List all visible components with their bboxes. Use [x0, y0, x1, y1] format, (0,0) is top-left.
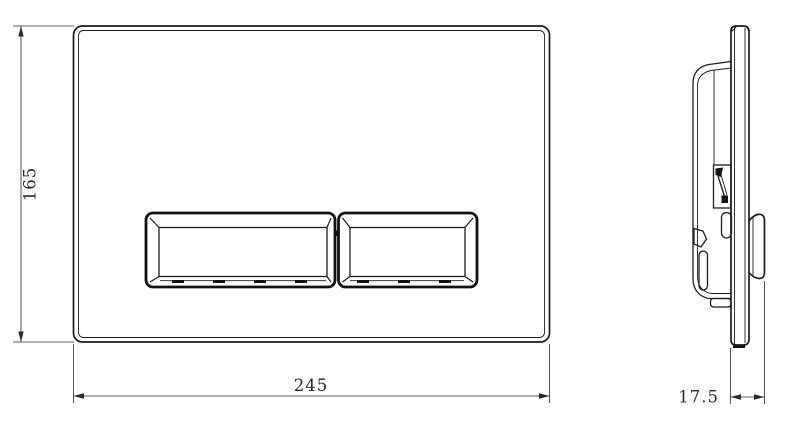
button-small: [339, 213, 478, 287]
bevel-line: [343, 277, 351, 283]
bevel-line: [465, 277, 473, 283]
dim-depth-label: 17.5: [678, 388, 719, 407]
dim-height-label: 165: [21, 167, 40, 202]
lever-mechanism: [714, 165, 732, 208]
bevel-line: [327, 277, 331, 283]
dimension-height: 165: [13, 26, 74, 342]
plate-inner-outline: [79, 31, 545, 338]
arrowhead-right: [754, 394, 765, 399]
arrowhead-left: [731, 394, 742, 399]
bevel-line: [343, 218, 351, 228]
lever-arm: [718, 176, 725, 197]
dimension-depth: 17.5: [678, 281, 764, 407]
lever-foot: [722, 196, 729, 204]
side-mounting-frame: [693, 62, 732, 308]
frame-bottom-flange: [711, 299, 732, 308]
plate-outer-outline: [74, 26, 550, 342]
side-view: 17.5: [678, 26, 764, 407]
button-divider-latch: [335, 231, 339, 237]
arrowhead-right: [539, 393, 550, 398]
flush-buttons: [146, 213, 477, 287]
technical-drawing-canvas: 165 245: [0, 0, 800, 442]
button-small-face: [350, 228, 465, 277]
dim-width-label: 245: [294, 376, 329, 395]
frame-slot-lower: [699, 251, 708, 290]
lever-pivot: [716, 168, 724, 178]
bevel-line: [465, 218, 473, 228]
side-plate-outline: [731, 26, 749, 345]
side-push-button: [749, 214, 765, 278]
side-plate-profile: [731, 26, 749, 347]
flush-plate-drawing: 165 245: [0, 0, 800, 442]
arrowhead-down: [18, 332, 23, 343]
button-large-face: [159, 228, 327, 277]
lever-arm-inner: [721, 175, 727, 196]
arrowhead-up: [18, 26, 23, 37]
frame-top-edge: [709, 62, 731, 65]
arrowhead-left: [74, 393, 85, 398]
push-button-profile: [749, 214, 765, 278]
front-view: 165 245: [13, 26, 550, 403]
bevel-line: [327, 218, 331, 228]
frame-slot-upper: [722, 213, 732, 239]
frame-side-bracket: [694, 229, 707, 248]
bevel-line: [150, 218, 159, 228]
button-large: [146, 213, 335, 287]
bevel-line: [150, 277, 159, 283]
dimension-width: 245: [74, 344, 550, 403]
